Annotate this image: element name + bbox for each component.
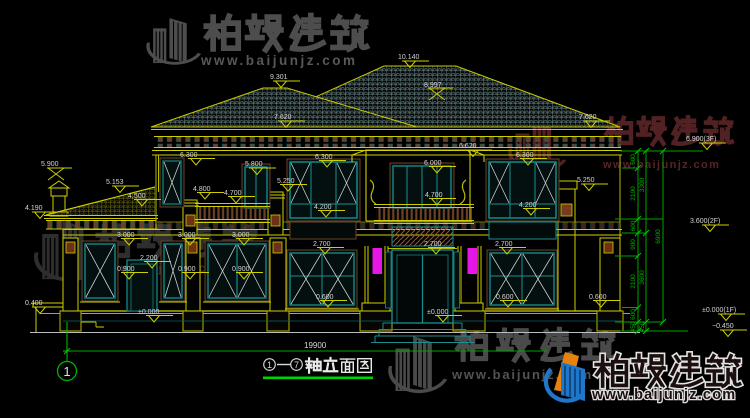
svg-text:4.800: 4.800 [193, 186, 211, 193]
svg-text:−0.450: −0.450 [712, 323, 734, 330]
svg-text:10.140: 10.140 [398, 54, 420, 61]
svg-text:6.300: 6.300 [516, 152, 534, 159]
svg-text:0.900: 0.900 [178, 266, 196, 273]
svg-text:7.620: 7.620 [274, 114, 292, 121]
svg-text:3600: 3600 [639, 270, 646, 285]
svg-text:3.000: 3.000 [117, 232, 135, 239]
svg-text:2100: 2100 [630, 274, 637, 289]
svg-text:6.000: 6.000 [424, 160, 442, 167]
svg-text:0.600: 0.600 [589, 294, 607, 301]
svg-text:600: 600 [630, 309, 637, 320]
svg-text:2.700: 2.700 [313, 241, 331, 248]
svg-text:5.250: 5.250 [277, 178, 295, 185]
svg-text:0.600: 0.600 [496, 294, 514, 301]
svg-text:2100: 2100 [630, 186, 637, 201]
svg-text:4.190: 4.190 [25, 205, 43, 212]
svg-text:2.700: 2.700 [424, 241, 442, 248]
svg-text:3.000: 3.000 [232, 232, 250, 239]
svg-text:5.900: 5.900 [41, 161, 59, 168]
svg-text:600: 600 [630, 154, 637, 165]
svg-text:7: 7 [294, 360, 299, 370]
svg-text:www.baijunjz.com: www.baijunjz.com [200, 53, 358, 68]
svg-text:900: 900 [630, 239, 637, 250]
svg-text:450: 450 [639, 321, 646, 332]
svg-text:7.620: 7.620 [579, 114, 597, 121]
svg-text:6.620: 6.620 [459, 143, 477, 150]
svg-text:4.200: 4.200 [519, 202, 537, 209]
svg-text:3300: 3300 [639, 177, 646, 192]
svg-text:2.200: 2.200 [140, 255, 158, 262]
svg-text:4.700: 4.700 [425, 192, 443, 199]
svg-text:450: 450 [630, 321, 637, 332]
svg-text:19900: 19900 [304, 341, 327, 350]
svg-text:4.200: 4.200 [314, 204, 332, 211]
svg-text:4.500: 4.500 [128, 193, 146, 200]
svg-text:6.300: 6.300 [180, 152, 198, 159]
svg-text:0.900: 0.900 [232, 266, 250, 273]
svg-text:3.600(2F): 3.600(2F) [690, 218, 720, 225]
svg-text:600: 600 [630, 220, 637, 231]
svg-text:0.400: 0.400 [25, 300, 43, 307]
svg-text:5.800: 5.800 [245, 161, 263, 168]
svg-text:6.900(3F): 6.900(3F) [686, 136, 716, 143]
svg-text:9.301: 9.301 [270, 74, 288, 81]
svg-text:2.700: 2.700 [495, 241, 513, 248]
svg-text:1: 1 [267, 360, 272, 370]
svg-text:0.900: 0.900 [117, 266, 135, 273]
svg-text:6900: 6900 [655, 229, 662, 244]
svg-text:www.baijunjz.com: www.baijunjz.com [591, 387, 736, 403]
svg-text:3.000: 3.000 [178, 232, 196, 239]
svg-text:1: 1 [63, 364, 70, 379]
svg-text:5.153: 5.153 [106, 179, 124, 186]
svg-text:±0.000: ±0.000 [138, 309, 159, 316]
svg-text:±0.000(1F): ±0.000(1F) [702, 307, 736, 314]
svg-text:0.600: 0.600 [316, 294, 334, 301]
svg-text:4.700: 4.700 [224, 190, 242, 197]
svg-text:6.300: 6.300 [315, 154, 333, 161]
svg-text:5.250: 5.250 [577, 177, 595, 184]
svg-text:±0.000: ±0.000 [427, 309, 448, 316]
